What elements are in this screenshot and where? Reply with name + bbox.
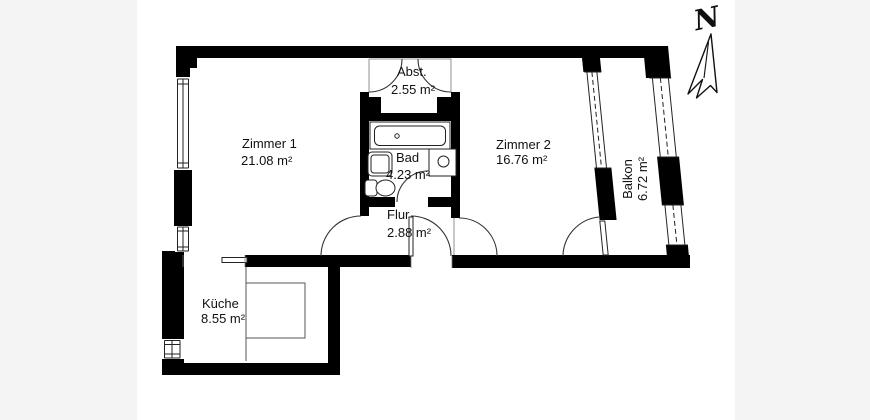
room-label-bad-area: 4.23 m² — [386, 168, 430, 182]
room-label-bad-name: Bad — [396, 151, 419, 165]
washing-machine — [429, 149, 456, 176]
room-label-zimmer1-area: 21.08 m² — [241, 154, 292, 168]
window-kueche — [162, 339, 184, 359]
room-label-kueche-area: 8.55 m² — [201, 312, 245, 326]
window-zimmer1-lower — [175, 226, 191, 252]
room-label-zimmer2-name: Zimmer 2 — [496, 138, 551, 152]
floorplan-drawing — [0, 0, 870, 420]
room-label-balkon: Balkon 6.72 m² — [620, 129, 652, 229]
room-label-balkon-area: 6.72 m² — [635, 129, 650, 229]
toilet — [365, 180, 395, 196]
room-label-abst-name: Abst. — [397, 65, 427, 79]
room-label-flur-area: 2.88 m² — [387, 226, 431, 240]
room-label-kueche-name: Küche — [202, 297, 239, 311]
room-label-balkon-name: Balkon — [620, 129, 635, 229]
room-label-zimmer1-name: Zimmer 1 — [242, 137, 297, 151]
room-label-zimmer2-area: 16.76 m² — [496, 153, 547, 167]
kueche-door-leaf — [222, 258, 247, 263]
room-label-abst-area: 2.55 m² — [391, 83, 435, 97]
floorplan-canvas: Zimmer 1 21.08 m² Zimmer 2 16.76 m² Abst… — [0, 0, 870, 420]
bathtub — [370, 122, 450, 149]
window-zimmer1-upper — [175, 77, 191, 170]
room-label-flur-name: Flur — [387, 208, 409, 222]
